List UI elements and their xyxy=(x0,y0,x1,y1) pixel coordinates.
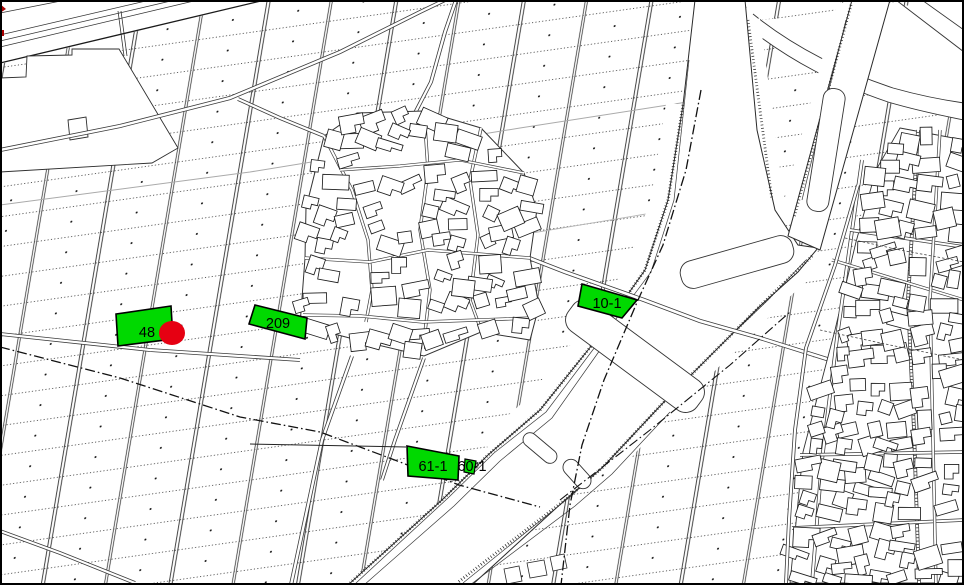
svg-text:209: 209 xyxy=(266,316,290,332)
svg-text:60-1: 60-1 xyxy=(457,459,486,475)
svg-text:61-1: 61-1 xyxy=(418,459,447,475)
svg-text:10-1: 10-1 xyxy=(592,296,621,312)
svg-text:48: 48 xyxy=(139,325,155,341)
